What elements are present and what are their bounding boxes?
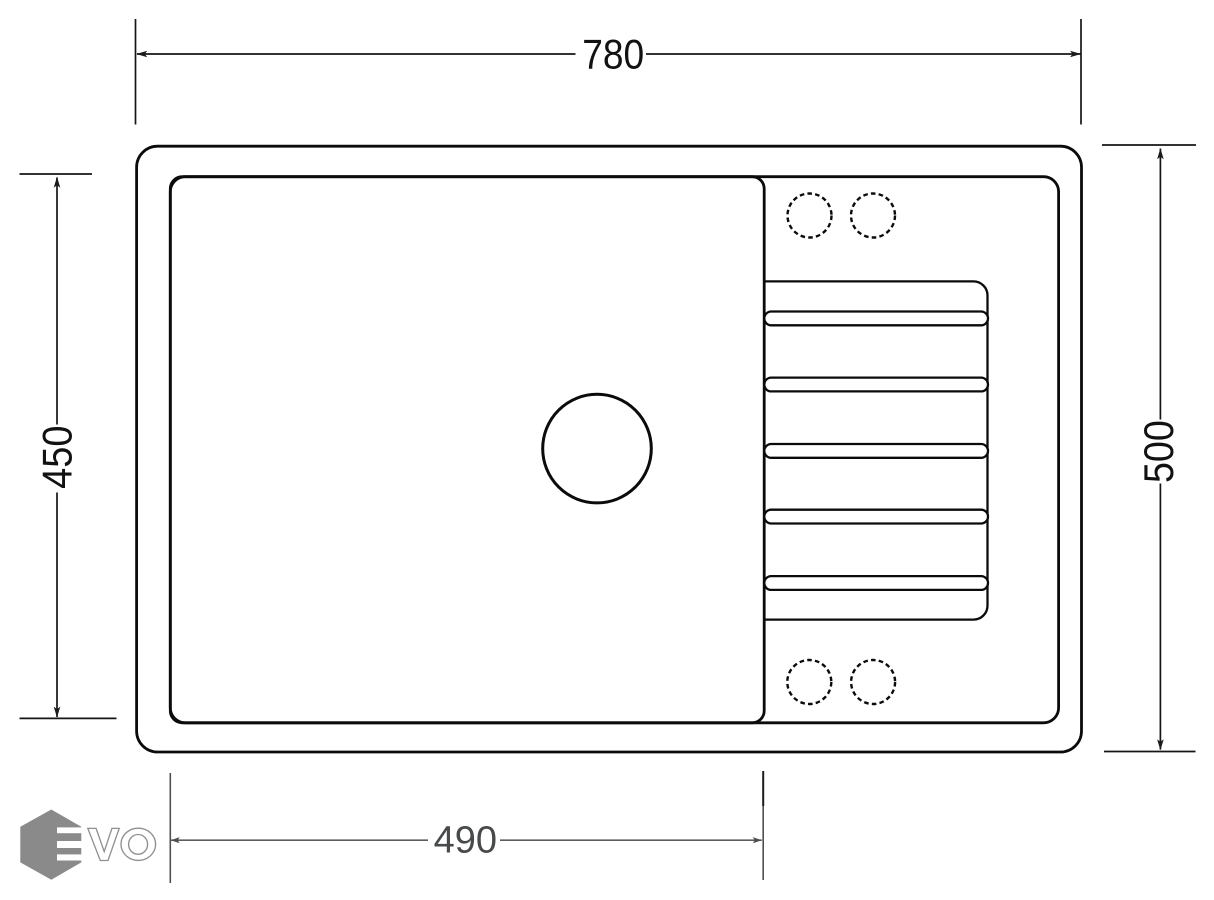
svg-text:780: 780	[582, 31, 644, 78]
svg-text:500: 500	[1135, 420, 1182, 483]
svg-text:450: 450	[34, 426, 81, 489]
svg-text:490: 490	[434, 820, 497, 862]
